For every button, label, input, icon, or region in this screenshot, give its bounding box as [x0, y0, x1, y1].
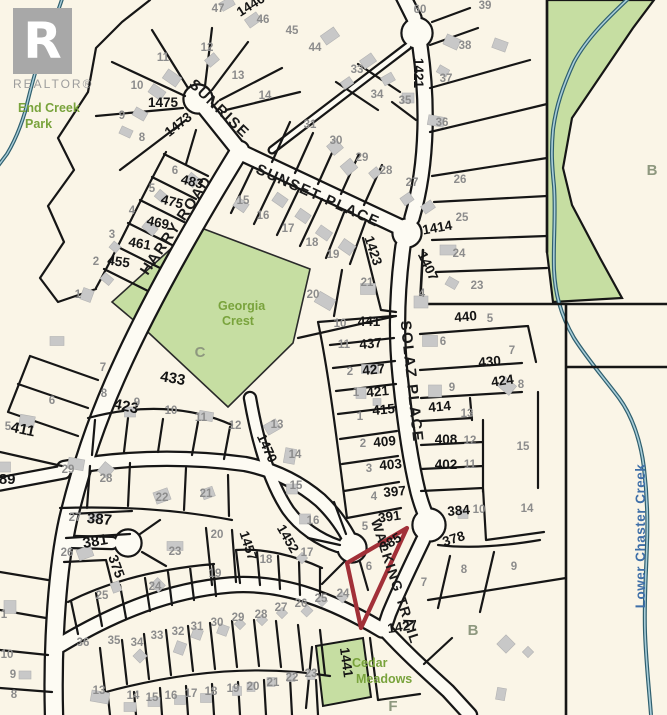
- lot-number: 20: [211, 529, 224, 541]
- address-label: 455: [106, 253, 131, 271]
- lot-number: 60: [414, 4, 427, 16]
- lot-number: 27: [275, 602, 288, 614]
- address-label: 402: [435, 457, 458, 472]
- lot-number: 9: [134, 397, 140, 409]
- lot-number: 10: [131, 80, 144, 92]
- lot-number: 8: [101, 388, 108, 400]
- lot-number: 2: [93, 256, 99, 268]
- address-label: 421: [366, 383, 390, 400]
- lot-number: 14: [127, 690, 140, 702]
- lot-number: 29: [356, 152, 369, 164]
- address-label: 408: [435, 432, 458, 447]
- lot-number: 21: [361, 277, 374, 289]
- lot-number: 25: [96, 590, 109, 602]
- lot-number: 35: [108, 635, 121, 647]
- lot-number: 7: [509, 345, 515, 357]
- realtor-logo-letter: R: [23, 16, 62, 66]
- lot-number: 6: [172, 165, 178, 177]
- lot-number: 16: [165, 690, 178, 702]
- lot-number: 25: [456, 212, 469, 224]
- lot-number: 28: [380, 165, 393, 177]
- lot-number: 10: [473, 504, 486, 516]
- lot-number: 23: [169, 546, 182, 558]
- lot-number: 29: [232, 612, 245, 624]
- address-label: 403: [379, 456, 403, 473]
- lot-number: 15: [146, 692, 159, 704]
- lot-number: 21: [267, 677, 280, 689]
- area-name: Crest: [222, 314, 255, 328]
- lot-number: 22: [156, 492, 169, 504]
- lot-number: 9: [511, 561, 517, 573]
- lot-number: 28: [100, 473, 113, 485]
- lot-number: 33: [351, 64, 364, 76]
- lot-number: 4: [371, 491, 378, 503]
- lot-number: 6: [366, 561, 372, 573]
- lot-number: 10: [1, 649, 14, 661]
- area-name: Meadows: [356, 672, 412, 686]
- address-label: 1475: [148, 95, 179, 110]
- address-label: 415: [372, 401, 396, 418]
- lot-number: 18: [205, 686, 218, 698]
- lot-number: 46: [257, 14, 270, 26]
- address-label: 441: [358, 314, 381, 329]
- lot-number: 9: [119, 110, 125, 122]
- lot-number: 26: [295, 598, 308, 610]
- lot-number: 12: [464, 435, 477, 447]
- lot-number: 16: [307, 515, 320, 527]
- address-label: 427: [362, 361, 386, 378]
- lot-number: 13: [93, 685, 106, 697]
- culdesac-top: [403, 19, 431, 47]
- lot-number: 15: [290, 480, 303, 492]
- address-label: 414: [428, 398, 452, 415]
- lot-number: 11: [464, 459, 477, 471]
- lot-number: 24: [453, 248, 466, 260]
- lot-number: 5: [5, 421, 12, 433]
- lot-number: 39: [479, 0, 492, 12]
- realtor-logo-mark: R: [13, 8, 72, 74]
- lot-number: 3: [109, 229, 115, 241]
- lot-number: 15: [237, 195, 250, 207]
- creek-name: Lower Chaster Creek: [633, 464, 648, 609]
- lot-number: 14: [259, 90, 272, 102]
- lot-number: 2: [347, 366, 353, 378]
- section-letter: F: [388, 698, 397, 715]
- lot-number: 31: [191, 621, 204, 633]
- lot-number: 38: [459, 40, 472, 52]
- lot-number: 36: [77, 637, 90, 649]
- building-footprint: [50, 337, 64, 346]
- lot-number: 6: [49, 395, 55, 407]
- address-label: 389: [0, 471, 16, 488]
- lot-number: 13: [461, 408, 474, 420]
- building-footprint: [496, 687, 507, 700]
- lot-number: 6: [440, 336, 446, 348]
- lot-number: 35: [399, 95, 412, 107]
- lot-number: 20: [247, 681, 260, 693]
- lot-number: 26: [61, 547, 74, 559]
- lot-number: 13: [232, 70, 245, 82]
- lot-number: 5: [362, 521, 369, 533]
- section-letter: C: [195, 344, 206, 361]
- lot-number: 31: [304, 119, 317, 131]
- building-footprint: [124, 703, 136, 712]
- address-label: 387: [86, 510, 112, 529]
- lot-number: 23: [305, 668, 318, 680]
- parcel-map[interactable]: SUNRISEHARRY ROADSUNSET PLACESOLAZ PLACE…: [0, 0, 667, 715]
- lot-number: 18: [260, 554, 273, 566]
- lot-number: 3: [366, 463, 372, 475]
- lot-number: 28: [255, 609, 268, 621]
- junction-bulge: [394, 220, 420, 246]
- lot-number: 17: [185, 688, 198, 700]
- lot-number: 8: [461, 564, 468, 576]
- lot-number: 10: [165, 405, 178, 417]
- address-label: 397: [383, 483, 407, 500]
- section-letter: B: [647, 162, 658, 179]
- address-label: 391: [377, 507, 402, 525]
- lot-number: 45: [286, 25, 299, 37]
- realtor-logo: R REALTOR®: [13, 8, 75, 91]
- lot-number: 44: [309, 42, 322, 54]
- building-footprint: [429, 385, 442, 397]
- lot-number: 24: [149, 581, 162, 593]
- lot-number: 19: [327, 249, 340, 261]
- address-label: 384: [447, 502, 471, 519]
- lot-number: 36: [436, 117, 449, 129]
- lot-number: 34: [131, 637, 144, 649]
- lot-number: 19: [209, 568, 222, 580]
- map-canvas[interactable]: SUNRISEHARRY ROADSUNSET PLACESOLAZ PLACE…: [0, 0, 667, 715]
- lot-number: 10: [334, 318, 347, 330]
- lot-number: 27: [406, 177, 419, 189]
- culdesac-solaz: [414, 510, 444, 540]
- lot-number: 9: [449, 382, 455, 394]
- lot-number: 18: [306, 237, 319, 249]
- lot-number: 5: [487, 313, 494, 325]
- lot-number: 27: [69, 512, 82, 524]
- lot-number: 1: [75, 289, 82, 301]
- lot-number: 21: [200, 488, 213, 500]
- lot-number: 11: [338, 339, 351, 351]
- lot-number: 20: [307, 289, 320, 301]
- lot-number: 8: [139, 132, 146, 144]
- area-name: Park: [25, 117, 52, 131]
- area-name: Georgia: [218, 299, 266, 313]
- lot-number: 12: [229, 420, 242, 432]
- lot-number: 16: [257, 210, 270, 222]
- lot-number: 1: [357, 411, 364, 423]
- lot-number: 4: [419, 288, 426, 300]
- section-letter: B: [468, 622, 479, 639]
- lot-number: 5: [149, 183, 156, 195]
- lot-number: 15: [517, 441, 530, 453]
- lot-number: 11: [157, 52, 170, 64]
- building-footprint: [19, 671, 31, 679]
- lot-number: 1: [1, 609, 8, 621]
- lot-number: 24: [337, 588, 350, 600]
- lot-number: 23: [471, 280, 484, 292]
- area-name: End Creek: [18, 101, 80, 115]
- lot-number: 25: [315, 593, 328, 605]
- lot-number: 11: [195, 412, 208, 424]
- lot-number: 4: [129, 205, 136, 217]
- address-label: 430: [478, 353, 502, 370]
- lot-number: 19: [227, 683, 240, 695]
- lot-number: 22: [286, 672, 299, 684]
- area-name: Cedar: [352, 656, 388, 670]
- lot-number: 12: [201, 42, 214, 54]
- lot-number: 9: [10, 669, 16, 681]
- realtor-logo-wordmark: REALTOR®: [13, 77, 75, 91]
- lot-number: 13: [271, 419, 284, 431]
- lot-number: 7: [421, 577, 427, 589]
- lot-number: 17: [301, 547, 314, 559]
- address-label: 440: [454, 308, 478, 325]
- lot-number: 30: [330, 135, 343, 147]
- lot-number: 17: [282, 223, 295, 235]
- building-footprint: [423, 336, 438, 347]
- lot-number: 2: [360, 438, 366, 450]
- lot-number: 32: [172, 626, 185, 638]
- lot-number: 47: [212, 3, 225, 15]
- lot-number: 14: [289, 449, 302, 461]
- lot-number: 8: [518, 379, 525, 391]
- lot-number: 8: [11, 689, 18, 701]
- address-label: 1421: [411, 58, 426, 89]
- lot-number: 34: [371, 89, 384, 101]
- address-label: 437: [359, 335, 383, 352]
- address-label: 409: [373, 433, 397, 450]
- lot-number: 37: [440, 73, 453, 85]
- lot-number: 30: [211, 617, 224, 629]
- lot-number: 26: [454, 174, 467, 186]
- address-label: 424: [490, 371, 515, 389]
- lot-number: 1: [353, 387, 360, 399]
- lot-number: 33: [151, 630, 164, 642]
- lot-number: 29: [62, 464, 75, 476]
- lot-number: 7: [100, 362, 106, 374]
- lot-number: 14: [521, 503, 534, 515]
